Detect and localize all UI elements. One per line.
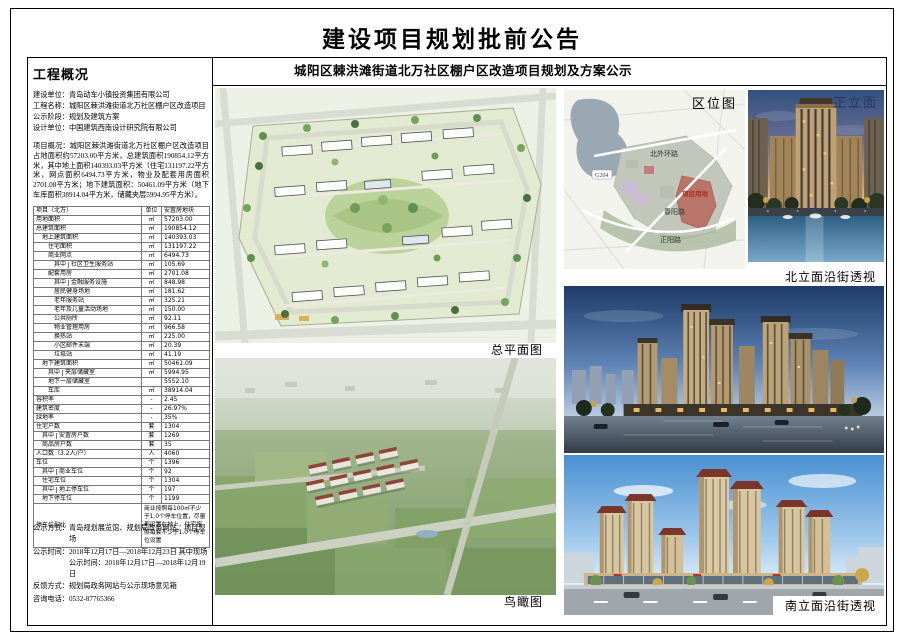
info-line: 建设单位：青岛动车小镇投资集团有限公司: [33, 90, 209, 101]
table-row: 垃圾站㎡41.19: [34, 351, 210, 360]
front-elevation-illustration: [748, 90, 884, 262]
table-row: 换热站㎡225.00: [34, 333, 210, 342]
site-plan-image: [215, 88, 556, 343]
table-row: 其中地上停车位个197: [34, 486, 210, 495]
site-plan-illustration: [215, 88, 556, 343]
table-row: 车库㎡38914.04: [34, 387, 210, 396]
notice-line: 公示时间：2018年12月17日—2018年12月23日 其中现场公示时间：20…: [33, 547, 209, 579]
table-row: 配套用房㎡2701.08: [34, 270, 210, 279]
table-row: 地下一层储藏室5552.10: [34, 378, 210, 387]
table-row: 居民健身场地㎡181.62: [34, 288, 210, 297]
center-column: 总平面图: [215, 88, 556, 625]
info-line: 工程名称：城阳区棘洪滩街道北万社区棚户区改造项目: [33, 101, 209, 112]
table-row: 小区邮件末端㎡20.39: [34, 342, 210, 351]
table-row: 人口数（3.2人/户）人4060: [34, 450, 210, 459]
south-perspective-image: 南立面沿街透视: [564, 455, 884, 615]
south-perspective-illustration: [564, 455, 884, 615]
front-elevation-image: 正立面: [748, 90, 884, 262]
birdseye-caption: 鸟瞰图: [215, 595, 556, 610]
overview-text: 城阳区棘洪滩街道北万社区棚户区改造项目占地面积约57203.00平方米，总建筑面…: [33, 142, 209, 200]
metrics-table-header-row: 项目（北万） 单位 安置房地块: [34, 207, 210, 216]
page-title: 建设项目规划批前公告: [0, 20, 904, 54]
map-road-label-zhengyang: 正阳路: [660, 235, 681, 244]
table-row: 物业管理用房㎡966.58: [34, 324, 210, 333]
map-site-marker: 项目用地: [682, 189, 709, 198]
table-row: 住宅户数套1304: [34, 423, 210, 432]
table-row: 商品房户数套35: [34, 441, 210, 450]
subtitle: 城阳区棘洪滩街道北万社区棚户区改造项目规划及方案公示: [63, 58, 863, 84]
notice-lines: 公示方式：青岛规划展览馆、规划局政务网站、项目现场公示时间：2018年12月17…: [33, 523, 209, 607]
map-road-label-north: 北外环路: [650, 149, 678, 158]
table-row: 老年服务站㎡325.21: [34, 297, 210, 306]
overview-label: 项目概况：: [33, 142, 70, 150]
right-column: 北外环路 春阳路 正阳路 G204 项目用地 区位图: [564, 88, 884, 625]
table-row: 公共厕所㎡92.11: [34, 315, 210, 324]
notice-line: 反馈方式：规划局政务网站与公示现场意见箱: [33, 581, 209, 592]
table-row: 住宅面积㎡131197.22: [34, 243, 210, 252]
table-row: 用地面积㎡57203.00: [34, 216, 210, 225]
birdseye-image: [215, 358, 556, 595]
birdseye-illustration: [215, 358, 556, 595]
location-map-caption: 区位图: [692, 93, 737, 112]
info-line: 设计单位：中国建筑西南设计研究院有限公司: [33, 123, 209, 134]
site-plan-caption: 总平面图: [215, 343, 556, 358]
location-map-illustration: 北外环路 春阳路 正阳路 G204 项目用地: [564, 90, 745, 269]
table-row: 总建筑面积㎡190854.12: [34, 225, 210, 234]
table-row: 其中金融服务设施㎡848.98: [34, 279, 210, 288]
header-unit: 单位: [142, 207, 162, 216]
info-line: 公示阶段：规划及建筑方案: [33, 112, 209, 123]
map-road-label-g204: G204: [595, 173, 608, 179]
north-perspective-image: [564, 286, 884, 453]
plans-region: 城阳区棘洪滩街道北万社区棚户区改造项目规划及方案公示: [213, 58, 886, 625]
table-row: 其中商业车位个92: [34, 468, 210, 477]
map-road-label-chunyang: 春阳路: [664, 207, 685, 216]
project-overview-panel: 工程概况 建设单位：青岛动车小镇投资集团有限公司工程名称：城阳区棘洪滩街道北万社…: [28, 58, 213, 625]
metrics-table: 项目（北万） 单位 安置房地块 用地面积㎡57203.00总建筑面积㎡19085…: [33, 206, 210, 548]
notice-line: 咨询电话：0532-87765366: [33, 594, 209, 605]
notice-line: 公示方式：青岛规划展览馆、规划局政务网站、项目现场: [33, 523, 209, 545]
content-box: 工程概况 建设单位：青岛动车小镇投资集团有限公司工程名称：城阳区棘洪滩街道北万社…: [27, 57, 887, 626]
table-row: 其中夹层储藏室㎡5994.95: [34, 369, 210, 378]
table-row: 地上建筑面积㎡140393.03: [34, 234, 210, 243]
table-row: 绿地率-35%: [34, 414, 210, 423]
table-row: 其中安置房户数套1269: [34, 432, 210, 441]
table-row: 车位个1396: [34, 459, 210, 468]
table-row: 地下停车位个1199: [34, 495, 210, 504]
table-row: 住宅车位个1304: [34, 477, 210, 486]
table-row: 其中社区卫生服务站㎡105.69: [34, 261, 210, 270]
header-value: 安置房地块: [162, 207, 210, 216]
table-row: 建筑密度-26.97%: [34, 405, 210, 414]
front-elevation-caption: 正立面: [833, 92, 878, 111]
table-row: 地下建筑面积㎡50461.09: [34, 360, 210, 369]
location-map-image: 北外环路 春阳路 正阳路 G204 项目用地 区位图: [564, 90, 745, 269]
north-perspective-caption: 北立面沿街透视: [564, 269, 884, 286]
south-perspective-caption: 南立面沿街透视: [773, 596, 884, 615]
table-row: 商业网点㎡6494.73: [34, 252, 210, 261]
subtitle-bar: 城阳区棘洪滩街道北万社区棚户区改造项目规划及方案公示: [213, 58, 886, 86]
table-row: 容积率-2.45: [34, 396, 210, 405]
project-overview-paragraph: 项目概况：城阳区棘洪滩街道北万社区棚户区改造项目占地面积约57203.00平方米…: [33, 142, 209, 202]
table-row: 老年及儿童活动场地㎡150.00: [34, 306, 210, 315]
north-perspective-illustration: [564, 286, 884, 453]
info-lines: 建设单位：青岛动车小镇投资集团有限公司工程名称：城阳区棘洪滩街道北万社区棚户区改…: [33, 90, 209, 135]
metrics-table-body: 用地面积㎡57203.00总建筑面积㎡190854.12地上建筑面积㎡14039…: [34, 216, 210, 548]
header-item: 项目（北万）: [34, 207, 142, 216]
